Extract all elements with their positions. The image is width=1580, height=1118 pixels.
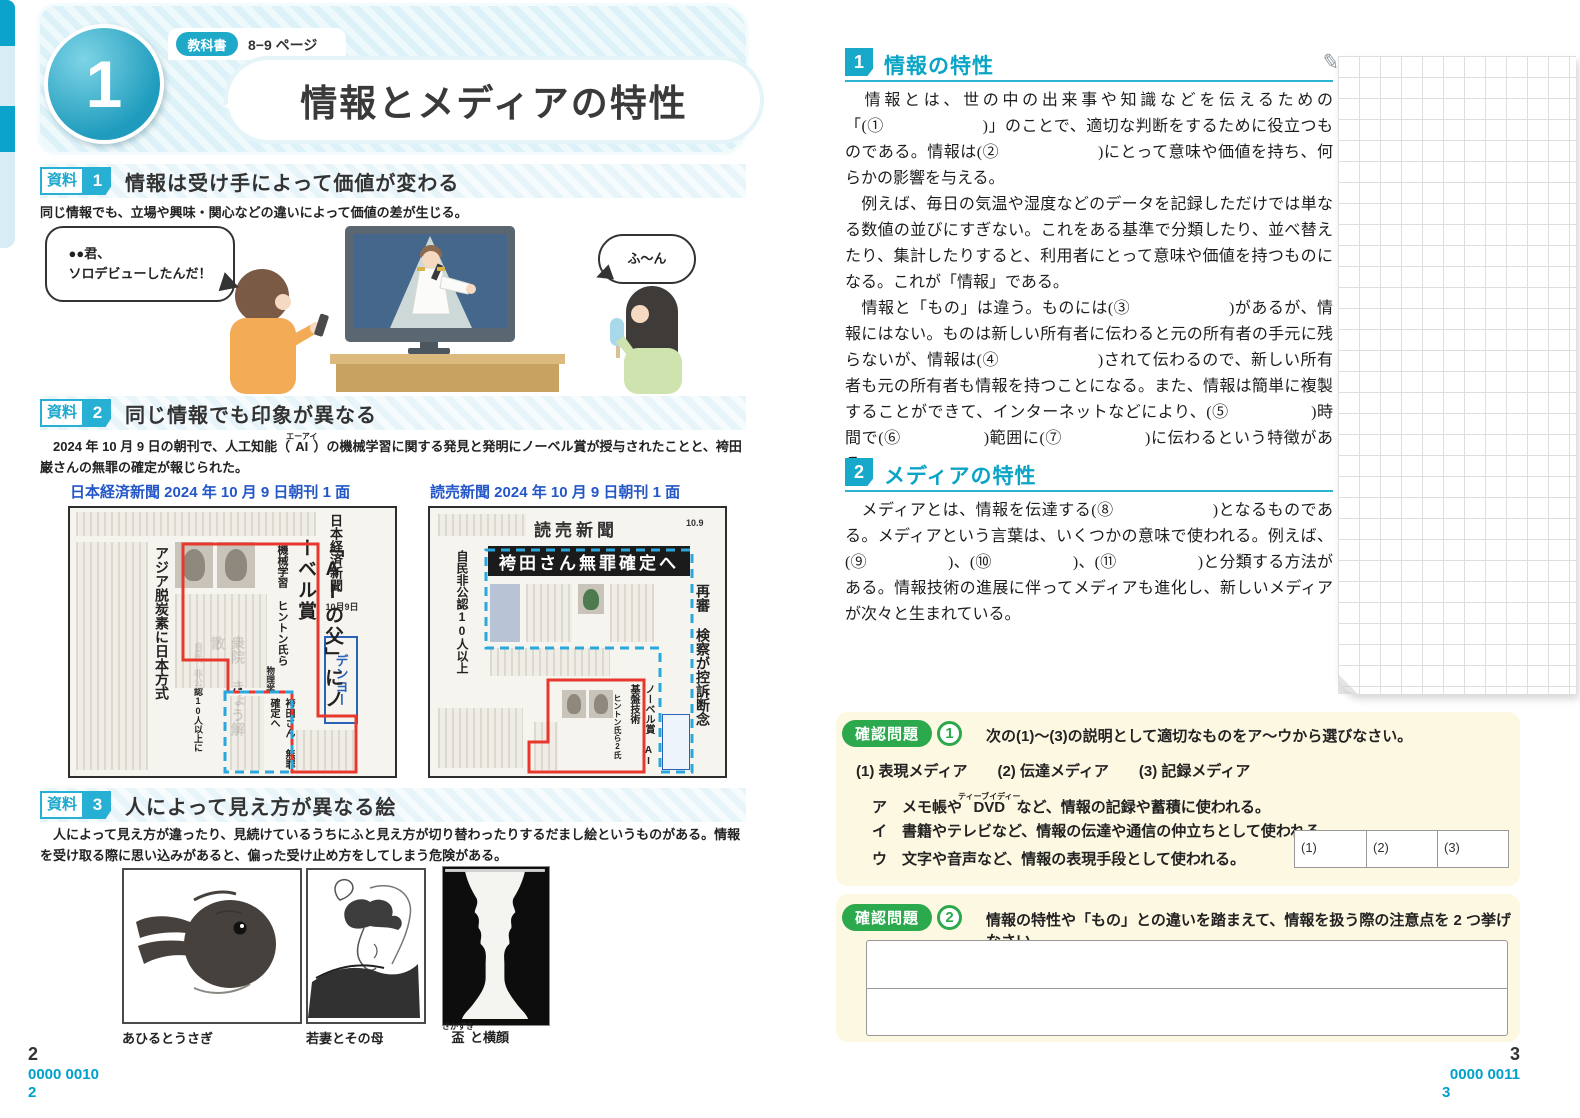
yomiuri-right-headline: 再審 検察が控訴断念 bbox=[693, 584, 713, 768]
lesson-number-circle: 1 bbox=[44, 24, 164, 144]
question2-badge-row: 確認問題 2 bbox=[842, 904, 962, 931]
np-texture bbox=[76, 542, 148, 770]
sakazuki-ruby: 盃さかずき bbox=[442, 1030, 470, 1045]
np-texture bbox=[610, 584, 654, 642]
option-c-text: 文字や音声など、情報の表現手段として使われる。 bbox=[902, 851, 1245, 868]
section2-number: 2 bbox=[845, 458, 873, 486]
section2-body: メディアとは、情報を伝達する(⑧ )となるものである。メディアという言葉は、いく… bbox=[845, 498, 1333, 628]
shiryo3-title: 人によって見え方が異なる絵 bbox=[125, 791, 396, 820]
np-texture bbox=[296, 730, 354, 770]
right-page-number: 3 bbox=[1390, 1044, 1520, 1065]
workbook-spread: 教科書 8−9 ページ 情報とメディアの特性 1 資料 1 情報は受け手によって… bbox=[0, 0, 1580, 1118]
yomiuri-front-page: 読売新聞 10.9 袴田さん無罪確定へ 再審 検察が控訴断念 自民非公認10人以… bbox=[428, 506, 727, 778]
ai-ruby-text: エーアイ bbox=[286, 432, 317, 441]
np-graphic-block bbox=[490, 584, 520, 642]
np-texture bbox=[490, 648, 610, 676]
np-texture bbox=[438, 514, 526, 536]
question1-items: (1) 表現メディア (2) 伝達メディア (3) 記録メディア bbox=[856, 760, 1250, 781]
shiryo-number: 1 bbox=[84, 167, 111, 195]
section1-paragraph: 情報とは、世の中の出来事や知識などを伝えるための「(① )」のことで、適切な判断… bbox=[845, 88, 1333, 192]
option-b-text: 書籍やテレビなど、情報の伝達や通信の仲立ちとして使われる。 bbox=[902, 823, 1335, 840]
question1-answer-table: (1) (2) (3) bbox=[1294, 830, 1509, 868]
yomiuri-left-headline: 自民非公認10人以上 bbox=[454, 550, 471, 706]
shiryo2-header: 資料 2 同じ情報でも印象が異なる bbox=[40, 396, 746, 430]
nikkei-front-page: 日本経済新聞 10月9日 デンヨー 「AIの父」にノーベル賞 機械学習 ヒントン… bbox=[68, 506, 397, 778]
shiryo3-header: 資料 3 人によって見え方が異なる絵 bbox=[40, 788, 746, 822]
right-page-code: 0000 0011 bbox=[1390, 1066, 1520, 1084]
right-page-code-number: 3 bbox=[1390, 1084, 1520, 1102]
shiryo1-header: 資料 1 情報は受け手によって価値が変わる bbox=[40, 164, 746, 198]
question1-option-c: ウ 文字や音声など、情報の表現手段として使われる。 bbox=[872, 848, 1245, 869]
nikkei-headline: 「AIの父」にノーベル賞 bbox=[292, 538, 346, 728]
answer-area-divider bbox=[867, 988, 1507, 989]
question1-option-b: イ 書籍やテレビなど、情報の伝達や通信の仲立ちとして使われる。 bbox=[872, 820, 1335, 841]
question1-option-a: ア メモ帳やDVDティーブイディーなど、情報の記録や蓄積に使われる。 bbox=[872, 792, 1270, 817]
nikkei-caption: 日本経済新聞 2024 年 10 月 9 日朝刊 1 面 bbox=[70, 481, 350, 502]
illusion2-caption: 若妻とその母 bbox=[306, 1028, 384, 1047]
section1-title: 情報の特性 bbox=[884, 50, 994, 80]
edge-tab-segment bbox=[0, 0, 15, 46]
dvd-base: DVD bbox=[958, 799, 1020, 816]
page-fold-corner bbox=[1338, 674, 1358, 694]
yomiuri-date: 10.9 bbox=[686, 518, 704, 528]
shiryo-label: 資料 bbox=[40, 399, 84, 427]
shiryo2-title: 同じ情報でも印象が異なる bbox=[125, 399, 377, 428]
shiryo2-intro: 2024 年 10 月 9 日の朝刊で、人工知能（AIエーアイ）の機械学習に関す… bbox=[40, 432, 746, 478]
question1-prompt: 次の(1)～(3)の説明として適切なものをア～ウから選びなさい。 bbox=[986, 725, 1412, 746]
lesson-title: 情報とメディアの特性 bbox=[300, 73, 687, 127]
question-number: 1 bbox=[937, 721, 962, 746]
section2-underline bbox=[845, 490, 1333, 492]
shiryo-number: 2 bbox=[84, 399, 111, 427]
question-badge: 確認問題 bbox=[842, 904, 932, 931]
section1-number: 1 bbox=[845, 48, 873, 76]
yomiuri-nobel-headline: ノーベル賞 AI基盤技術 bbox=[626, 684, 656, 770]
wife-mother-drawing bbox=[308, 870, 420, 1018]
np-texture bbox=[438, 708, 523, 768]
question-badge: 確認問題 bbox=[842, 720, 932, 747]
option-a-label: ア bbox=[872, 799, 887, 816]
lesson-title-bubble: 情報とメディアの特性 bbox=[228, 60, 760, 140]
pencil-icon: ✎ bbox=[1320, 49, 1341, 76]
np-photo bbox=[562, 690, 586, 718]
shiryo3-intro: 人によって見え方が違ったり、見続けているうちにふと見え方が切り替わったりするだま… bbox=[40, 824, 746, 866]
duck-rabbit-drawing bbox=[124, 870, 296, 1018]
dvd-ruby: DVDティーブイディー bbox=[962, 799, 1016, 816]
speech-bubble-left: ●●君、 ソロデビューしたんだ！ bbox=[45, 226, 235, 302]
lesson-number: 1 bbox=[86, 51, 123, 117]
duck-rabbit-illusion bbox=[122, 868, 302, 1024]
ai-ruby: AIエーアイ bbox=[290, 439, 313, 454]
speech-bubble-right: ふ～ん bbox=[598, 234, 696, 284]
option-a-post: など、情報の記録や蓄積に使われる。 bbox=[1017, 799, 1271, 816]
intro-pre: 2024 年 10 月 9 日の朝刊で、人工知能（ bbox=[40, 439, 290, 454]
answer-cell-2[interactable]: (2) bbox=[1366, 831, 1437, 867]
nikkei-left-headline: アジア脱炭素に日本方式 bbox=[152, 546, 172, 732]
question2-answer-area[interactable] bbox=[866, 940, 1508, 1036]
left-page-number: 2 bbox=[28, 1044, 38, 1065]
option-b-label: イ bbox=[872, 823, 887, 840]
illusion1-caption: あひるとうさぎ bbox=[122, 1028, 213, 1047]
section1-underline bbox=[845, 80, 1333, 82]
nikkei-hakamata-headline: 袴田さん 無罪確定へ bbox=[266, 698, 296, 770]
np-photo bbox=[217, 542, 255, 588]
section1-body: 情報とは、世の中の出来事や知識などを伝えるための「(① )」のことで、適切な判断… bbox=[845, 88, 1333, 478]
np-texture bbox=[534, 722, 558, 770]
shiryo-label: 資料 bbox=[40, 791, 84, 819]
option-a-pre: メモ帳や bbox=[902, 799, 962, 816]
vase-faces-drawing bbox=[443, 867, 547, 1023]
shiryo-label: 資料 bbox=[40, 167, 84, 195]
question2-box: 確認問題 2 情報の特性や「もの」との違いを踏まえて、情報を扱う際の注意点を 2… bbox=[836, 894, 1520, 1042]
question1-box: 確認問題 1 次の(1)～(3)の説明として適切なものをア～ウから選びなさい。 … bbox=[836, 712, 1520, 886]
dvd-reading: ティーブイディー bbox=[958, 792, 1020, 801]
textbook-badge: 教科書 bbox=[176, 32, 238, 56]
left-page-code-number: 2 bbox=[28, 1084, 36, 1102]
np-texture bbox=[175, 594, 267, 688]
shiryo1-title: 情報は受け手によって価値が変わる bbox=[125, 167, 459, 196]
shiryo-number: 3 bbox=[84, 791, 111, 819]
yomiuri-nobel-subhead: ヒントン氏ら2氏 bbox=[612, 694, 623, 766]
np-texture bbox=[230, 696, 264, 770]
edge-tab-segment bbox=[0, 106, 15, 152]
vase-faces-illusion bbox=[442, 866, 550, 1026]
np-photo bbox=[578, 584, 604, 614]
textbook-pages: 8−9 ページ bbox=[248, 35, 317, 55]
np-photo bbox=[589, 690, 613, 718]
section1-paragraph: 例えば、毎日の気温や湿度などのデータを記録しただけでは単なる数値の並びにすぎない… bbox=[845, 192, 1333, 296]
chapter-edge-tab bbox=[0, 0, 15, 248]
section2-title: メディアの特性 bbox=[884, 460, 1037, 490]
caption3-rest: と横顔 bbox=[470, 1030, 509, 1045]
answer-cell-1[interactable]: (1) bbox=[1295, 831, 1366, 867]
answer-cell-3[interactable]: (3) bbox=[1437, 831, 1508, 867]
question-number: 2 bbox=[937, 905, 962, 930]
left-page-code: 0000 0010 bbox=[28, 1066, 99, 1084]
yomiuri-masthead: 読売新聞 bbox=[534, 516, 618, 541]
np-texture bbox=[76, 512, 316, 536]
option-c-label: ウ bbox=[872, 851, 887, 868]
section1-paragraph: 情報と「もの」は違う。ものには(③ )があるが、情報にはない。ものは新しい所有者… bbox=[845, 296, 1333, 478]
yomiuri-headline-bar: 袴田さん無罪確定へ bbox=[488, 546, 690, 576]
np-texture bbox=[526, 584, 572, 642]
illusion3-caption: 盃さかずきと横顔 bbox=[442, 1022, 509, 1046]
np-ad-box bbox=[662, 714, 690, 770]
np-photo bbox=[175, 542, 213, 588]
yomiuri-caption: 読売新聞 2024 年 10 月 9 日朝刊 1 面 bbox=[430, 481, 680, 502]
lesson-banner: 教科書 8−9 ページ 情報とメディアの特性 1 bbox=[40, 6, 746, 152]
question1-badge-row: 確認問題 1 bbox=[842, 720, 962, 747]
sakazuki-reading: さかずき bbox=[442, 1022, 474, 1031]
note-grid-paper[interactable] bbox=[1338, 56, 1576, 694]
wife-mother-illusion bbox=[306, 868, 426, 1024]
section2-paragraph: メディアとは、情報を伝達する(⑧ )となるものである。メディアという言葉は、いく… bbox=[845, 498, 1333, 628]
